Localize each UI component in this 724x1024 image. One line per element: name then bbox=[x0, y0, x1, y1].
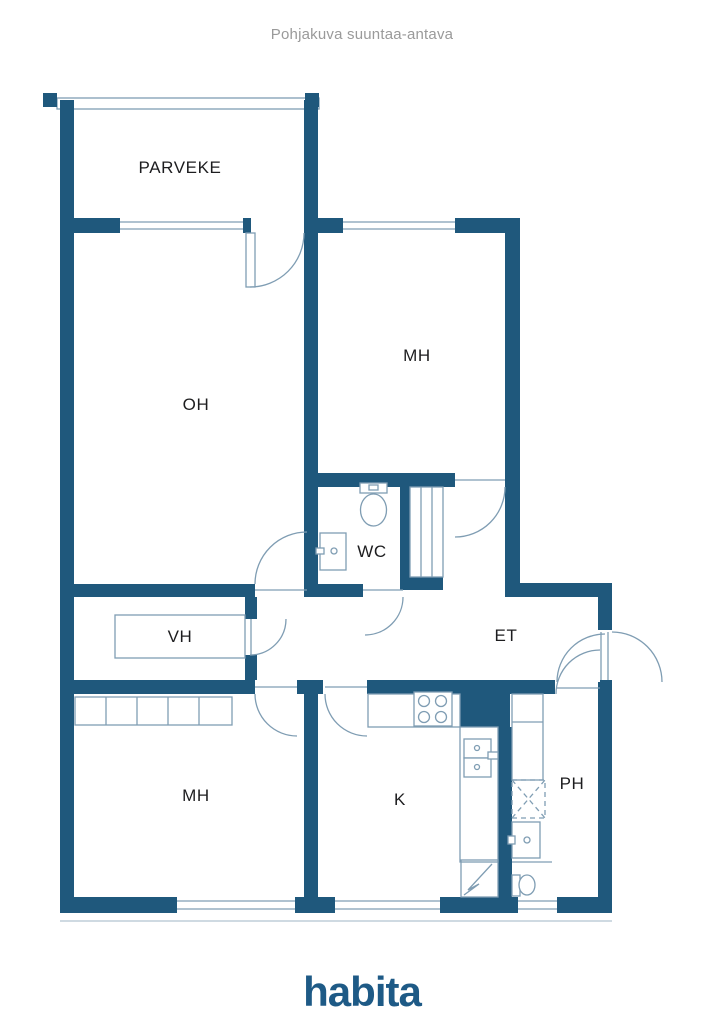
bathroom-washer bbox=[508, 822, 552, 862]
door-bedroom-bottom bbox=[255, 687, 297, 736]
kitchen-sink bbox=[464, 739, 498, 777]
wc-toilet bbox=[360, 483, 387, 526]
floorplan-page: Pohjakuva suuntaa-antava bbox=[0, 0, 724, 1024]
wall-k-ph-divider bbox=[498, 727, 512, 897]
window-kitchen bbox=[335, 901, 440, 909]
label-bedroom-top: MH bbox=[403, 346, 431, 365]
door-bedroom-top bbox=[455, 480, 505, 537]
label-entrance: ET bbox=[495, 626, 518, 645]
floor-plan-canvas: PARVEKE OH MH WC VH ET MH K PH bbox=[0, 0, 724, 1024]
door-balcony bbox=[246, 233, 304, 287]
wall-oh-vh bbox=[74, 584, 255, 597]
wall-wc-right bbox=[400, 487, 410, 587]
door-wc bbox=[363, 590, 403, 635]
label-bedroom-bottom: MH bbox=[182, 786, 210, 805]
door-living-room bbox=[255, 532, 307, 590]
bathroom-cabinet bbox=[512, 694, 543, 780]
wall-vh-right-lower bbox=[245, 655, 257, 680]
balcony-wall-right bbox=[304, 100, 318, 233]
wall-hall-south-1 bbox=[60, 680, 255, 694]
wall-oh-mh-divider bbox=[304, 233, 318, 597]
habita-logo: habita bbox=[0, 968, 724, 1016]
window-bedroom-bottom bbox=[177, 901, 295, 909]
window-bedroom-top bbox=[343, 222, 455, 229]
door-bathroom bbox=[556, 650, 600, 694]
label-bathroom: PH bbox=[560, 774, 585, 793]
hall-wardrobe bbox=[410, 487, 443, 577]
label-wc: WC bbox=[357, 542, 387, 561]
wall-wc-bottom bbox=[304, 584, 363, 597]
kitchen-fridge bbox=[461, 860, 498, 897]
label-kitchen: K bbox=[394, 790, 406, 809]
window-balcony bbox=[120, 222, 243, 229]
balcony-wall-left bbox=[60, 100, 74, 233]
label-living-room: OH bbox=[183, 395, 210, 414]
door-entrance bbox=[557, 632, 662, 682]
bathroom-shower bbox=[512, 780, 545, 818]
label-balcony: PARVEKE bbox=[139, 158, 222, 177]
wall-mh-k-divider bbox=[304, 694, 318, 897]
kitchen-stove bbox=[414, 692, 452, 726]
bedroom-wardrobe bbox=[75, 697, 232, 725]
balcony-post-left bbox=[43, 93, 57, 107]
door-kitchen bbox=[325, 687, 367, 736]
bathroom-toilet bbox=[512, 875, 535, 896]
label-closet: VH bbox=[168, 627, 193, 646]
wc-sink bbox=[316, 533, 346, 570]
wall-vh-right-upper bbox=[245, 597, 257, 619]
door-closet bbox=[250, 619, 286, 655]
window-bathroom bbox=[518, 901, 557, 909]
